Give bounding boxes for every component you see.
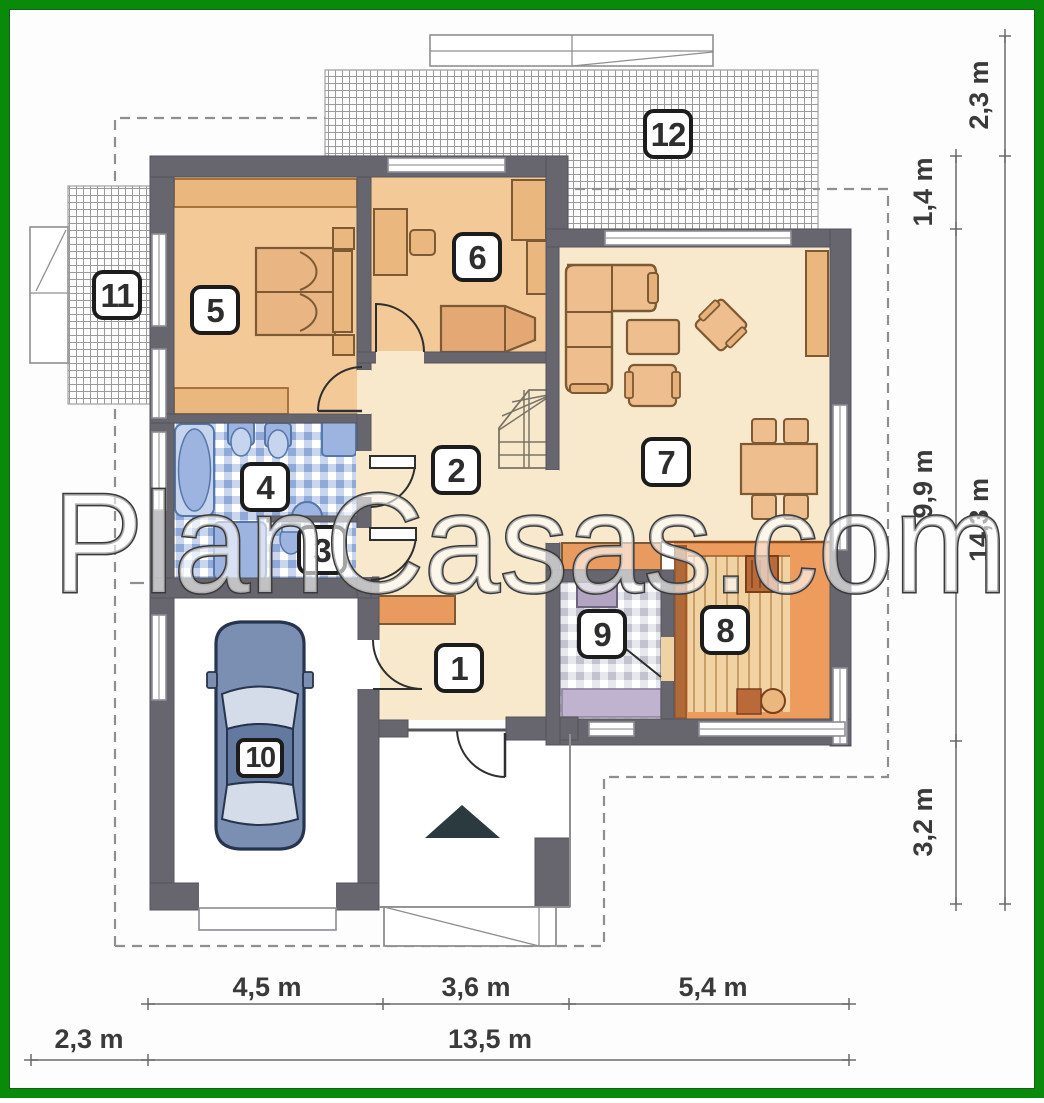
svg-text:1,4 m: 1,4 m [908,157,938,226]
svg-text:1: 1 [450,650,468,687]
svg-text:5: 5 [206,292,224,329]
svg-text:10: 10 [245,742,275,774]
svg-text:2,3 m: 2,3 m [964,60,994,129]
svg-text:2,3 m: 2,3 m [54,1024,123,1054]
svg-text:11: 11 [101,277,135,314]
svg-text:3,6 m: 3,6 m [441,972,510,1002]
svg-text:13,5 m: 13,5 m [448,1024,532,1054]
svg-text:3,2 m: 3,2 m [908,787,938,856]
svg-text:5,4 m: 5,4 m [678,972,747,1002]
svg-text:6: 6 [468,239,486,276]
svg-text:12: 12 [651,116,686,153]
svg-text:4,5 m: 4,5 m [232,972,301,1002]
svg-text:PlanCasas.com: PlanCasas.com [53,464,1008,623]
